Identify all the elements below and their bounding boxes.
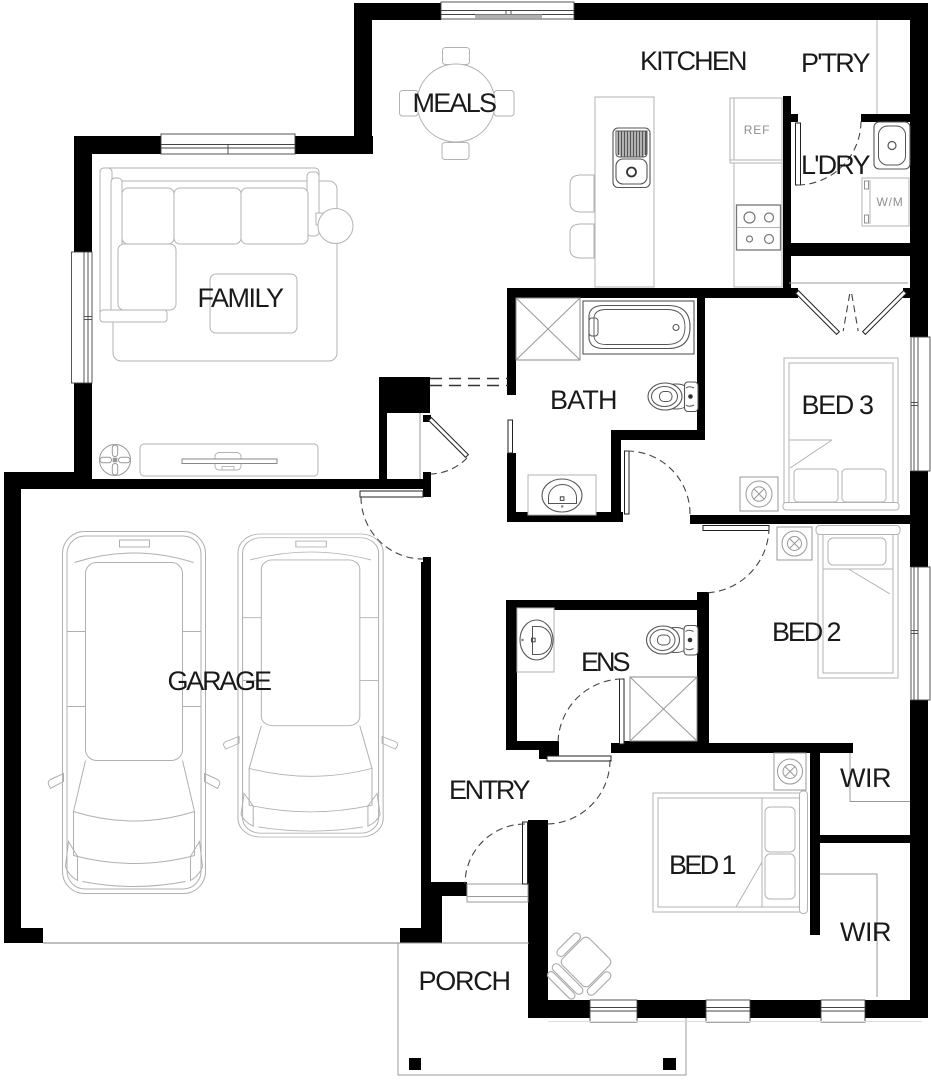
svg-text:FAMILY: FAMILY [198, 283, 285, 313]
svg-text:P'TRY: P'TRY [801, 48, 871, 78]
svg-text:PORCH: PORCH [419, 966, 512, 996]
svg-text:W/M: W/M [876, 195, 903, 209]
svg-text:MEALS: MEALS [413, 88, 498, 118]
svg-text:REF: REF [744, 123, 770, 137]
svg-text:BATH: BATH [550, 385, 618, 415]
svg-text:WIR: WIR [840, 763, 892, 793]
svg-text:GARAGE: GARAGE [168, 666, 273, 696]
svg-text:WIR: WIR [840, 917, 892, 947]
svg-text:L'DRY: L'DRY [801, 150, 871, 180]
svg-text:KITCHEN: KITCHEN [640, 46, 748, 76]
svg-text:BED 3: BED 3 [802, 390, 875, 420]
svg-text:ENTRY: ENTRY [449, 775, 531, 805]
svg-text:BED 2: BED 2 [772, 617, 842, 647]
svg-text:BED 1: BED 1 [669, 850, 737, 880]
svg-text:ENS: ENS [581, 647, 631, 677]
